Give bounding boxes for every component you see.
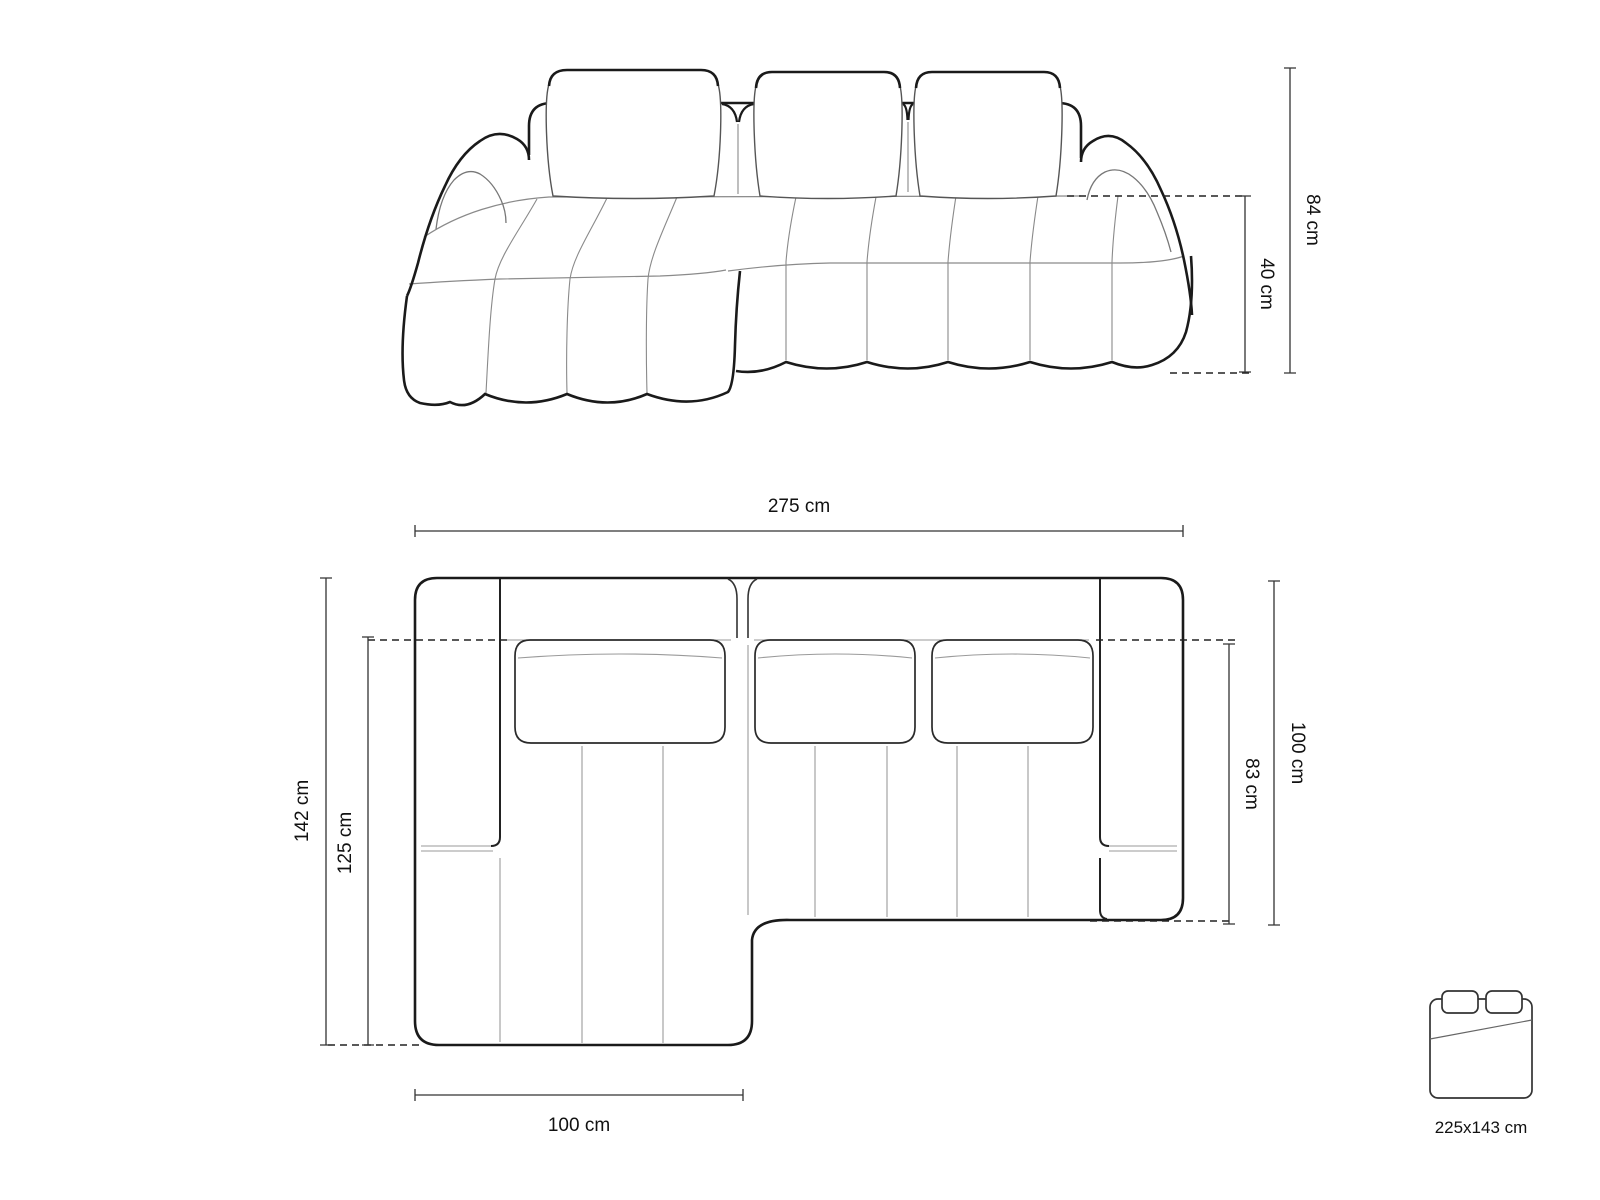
cushion-body (754, 72, 902, 199)
seat-front-edge (728, 256, 1184, 271)
dim-label-seat-height: 40 cm (1256, 258, 1277, 310)
dimension-chaise-inner-depth: 125 cm (335, 637, 374, 1045)
dimension-chaise-width: 100 cm (415, 1089, 743, 1136)
cushion-outline (755, 640, 915, 743)
left-armrest-outline (407, 134, 529, 296)
bed-outline (1430, 999, 1532, 1098)
bed-icon (1430, 991, 1532, 1098)
dimension-side-depth: 100 cm (1268, 581, 1308, 925)
chaise-base (403, 271, 740, 405)
right-base (736, 256, 1192, 372)
dimension-line (415, 1089, 743, 1101)
seat-cushion-right (932, 640, 1093, 743)
dim-label-total-width: 275 cm (768, 496, 830, 517)
cushion-outline (932, 640, 1093, 743)
chaise-front-edge (409, 270, 726, 284)
top-view: 275 cm 142 cm 125 cm 100 cm 83 cm 100 cm (292, 496, 1308, 1136)
dim-label-side-depth: 100 cm (1287, 722, 1308, 784)
seat-top-edge (424, 196, 1081, 237)
seat-seam (1112, 196, 1118, 360)
sleeping-area-label: 225x143 cm (1435, 1118, 1528, 1137)
seat-seam (867, 197, 876, 360)
back-cushion-left (546, 70, 721, 199)
back-cushion-right (914, 72, 1062, 199)
dimension-inner-seat-depth: 83 cm (1223, 644, 1262, 924)
bed-pillow-right (1486, 991, 1522, 1013)
dim-label-total-depth: 142 cm (292, 780, 313, 842)
seat-seam (786, 197, 796, 360)
sleeping-area: 225x143 cm (1430, 991, 1532, 1137)
dimension-line (1223, 644, 1235, 924)
dimension-total-height: 84 cm (1284, 68, 1323, 373)
dimension-line (1268, 581, 1280, 925)
dimension-seat-height: 40 cm (1239, 196, 1277, 372)
chaise-seam (486, 199, 537, 393)
dimension-total-width: 275 cm (415, 496, 1183, 537)
back-cushion-center (754, 72, 902, 199)
cushion-body (546, 70, 721, 199)
front-view: 84 cm 40 cm (403, 68, 1323, 405)
chaise-seam (567, 198, 607, 393)
left-armrest (407, 134, 529, 296)
seat-cushion-chaise (515, 640, 725, 743)
cushion-outline (515, 640, 725, 743)
dimension-line (1239, 196, 1251, 372)
chaise-seam (646, 197, 677, 393)
dimension-line (320, 578, 332, 1045)
seat-seam (948, 196, 956, 360)
dimension-total-depth: 142 cm (292, 578, 332, 1045)
bed-pillow-left (1442, 991, 1478, 1013)
diagram-canvas: 84 cm 40 cm (0, 0, 1600, 1200)
dimension-line (1284, 68, 1296, 373)
seat-cushion-middle (755, 640, 915, 743)
dimension-line (362, 637, 374, 1045)
dim-label-chaise-inner-depth: 125 cm (335, 812, 356, 874)
sofa-dimension-diagram: 84 cm 40 cm (0, 0, 1600, 1200)
seat-seam (1030, 196, 1038, 360)
dim-label-chaise-width: 100 cm (548, 1115, 610, 1136)
projection-dashed-lines-front (1067, 196, 1252, 373)
cushion-body (914, 72, 1062, 199)
right-armrest (1081, 136, 1192, 315)
right-armrest-outline (1081, 136, 1192, 315)
dim-label-inner-seat-depth: 83 cm (1241, 758, 1262, 810)
dim-label-total-height: 84 cm (1302, 194, 1323, 246)
dimension-line (415, 525, 1183, 537)
